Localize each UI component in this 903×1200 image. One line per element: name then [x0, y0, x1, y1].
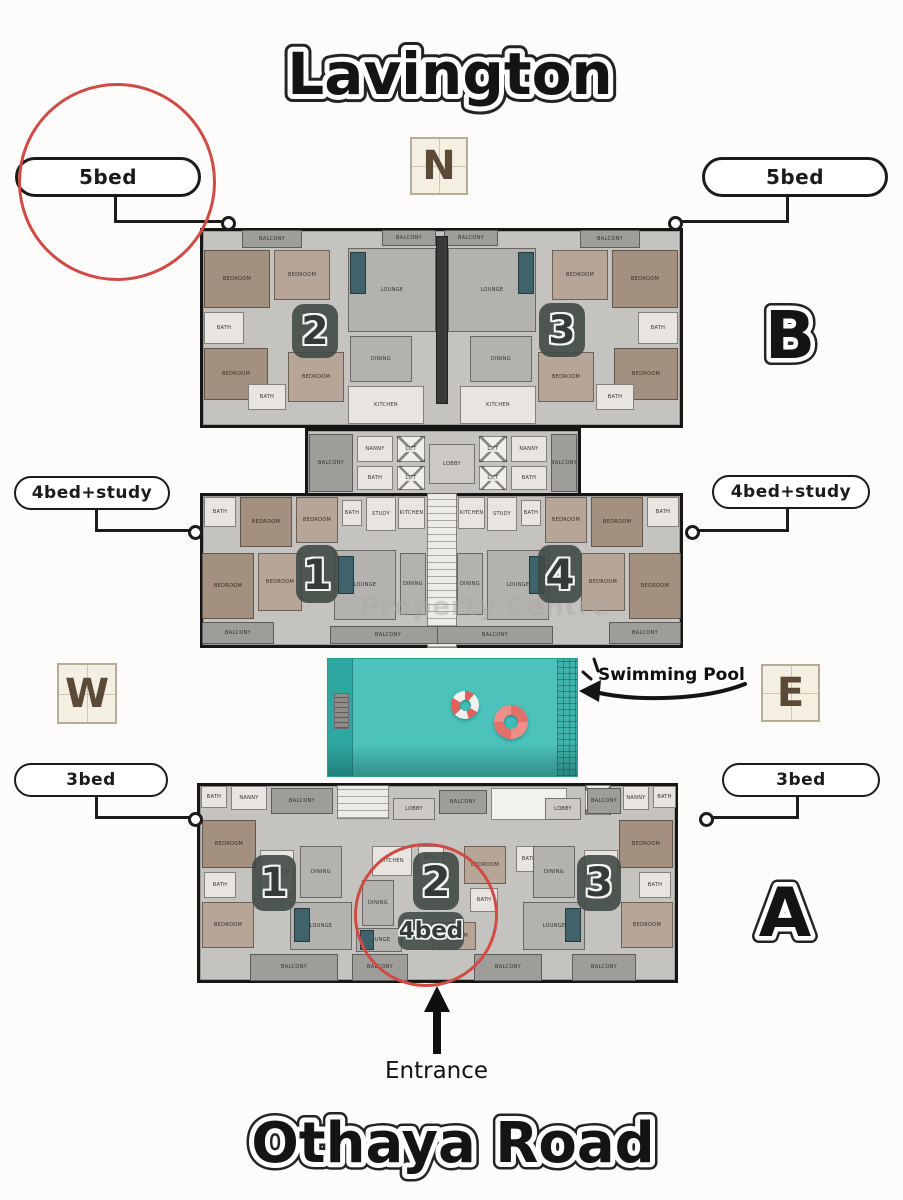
- room-label: BEDROOM: [631, 277, 659, 282]
- tag-4bed-study-right: 4bed+study: [712, 475, 870, 509]
- room-label: BEDROOM: [214, 923, 242, 928]
- room-balcony: BALCONY: [271, 788, 333, 814]
- room-balcony: BALCONY: [439, 790, 487, 814]
- room-area: [337, 785, 389, 819]
- tag-3bed-right: 3bed: [722, 763, 880, 797]
- room-label: BEDROOM: [266, 580, 294, 585]
- room-label: KITCHEN: [374, 403, 398, 408]
- room-label: BEDROOM: [252, 520, 280, 525]
- room-balcony: BALCONY: [330, 626, 446, 644]
- room-label: BATH: [657, 795, 671, 800]
- room-bath: BATH: [639, 872, 671, 898]
- room-bedroom: BEDROOM: [538, 352, 594, 402]
- room-label: LIFT: [486, 476, 499, 481]
- tag-4bed-study-left-label: 4bed+study: [32, 483, 153, 503]
- room-label: BEDROOM: [589, 580, 617, 585]
- room-balcony: BALCONY: [382, 230, 436, 246]
- room-nanny: NANNY: [623, 786, 649, 810]
- connector-line: [704, 816, 799, 819]
- room-area: [350, 252, 366, 294]
- room-balcony: BALCONY: [609, 622, 681, 644]
- room-label: DINING: [491, 357, 511, 362]
- tag-3bed-left: 3bed: [14, 763, 168, 797]
- room-bedroom: BEDROOM: [619, 820, 673, 868]
- room-label: BATH: [524, 511, 538, 516]
- room-area: [436, 236, 448, 404]
- room-label: BALCONY: [458, 236, 484, 241]
- room-label: LOUNGE: [543, 924, 566, 929]
- room-label: BALCONY: [225, 631, 251, 636]
- room-dining: DINING: [300, 846, 342, 898]
- highlight-circle-5bed: [18, 83, 216, 281]
- room-label: DINING: [311, 870, 331, 875]
- room-balcony: BALCONY: [587, 788, 621, 814]
- room-label: BALCONY: [591, 965, 617, 970]
- room-label: DINING: [403, 582, 423, 587]
- room-label: DINING: [371, 357, 391, 362]
- room-balcony: BALCONY: [572, 954, 636, 981]
- connector-endpoint: [668, 216, 683, 231]
- room-label: BALCONY: [396, 236, 422, 241]
- pool-float-hole: [504, 715, 518, 729]
- pool-label-text: Swimming Pool: [598, 665, 745, 685]
- room-lobby: LOBBY: [393, 798, 435, 820]
- room-kitchen: KITCHEN: [348, 386, 424, 424]
- room-lift: LIFT: [479, 466, 507, 490]
- room-study: STUDY: [487, 497, 517, 531]
- pool-shadow: [328, 744, 577, 776]
- room-label: BEDROOM: [303, 518, 331, 523]
- room-area: [518, 252, 534, 294]
- room-label: LOUNGE: [354, 583, 377, 588]
- block-a-letter: A A A: [728, 858, 843, 958]
- room-balcony: BALCONY: [551, 434, 577, 492]
- room-kitchen: KITCHEN: [458, 497, 485, 529]
- connector-endpoint: [188, 525, 203, 540]
- connector-endpoint: [221, 216, 236, 231]
- room-lift: LIFT: [479, 436, 507, 462]
- connector-endpoint: [188, 812, 203, 827]
- tag-5bed-right-label: 5bed: [766, 165, 824, 189]
- site-plan-page: Lavington Lavington Lavington N W E 5bed…: [0, 0, 903, 1200]
- room-balcony: BALCONY: [580, 230, 640, 248]
- room-label: BEDROOM: [214, 584, 242, 589]
- room-bath: BATH: [204, 872, 236, 898]
- room-label: BATH: [522, 476, 536, 481]
- room-bath: BATH: [511, 466, 547, 490]
- room-label: BATH: [217, 326, 231, 331]
- room-label: LOBBY: [443, 462, 461, 467]
- room-label: BATH: [656, 510, 670, 515]
- room-label: BALCONY: [318, 461, 344, 466]
- connector-endpoint: [685, 525, 700, 540]
- room-label: LIFT: [404, 447, 417, 452]
- room-label: BEDROOM: [632, 372, 660, 377]
- room-label: BEDROOM: [215, 842, 243, 847]
- room-bedroom: BEDROOM: [612, 250, 678, 308]
- room-label: STUDY: [372, 512, 390, 517]
- entrance-label-text: Entrance: [385, 1058, 488, 1084]
- room-label: LIFT: [404, 476, 417, 481]
- room-label: LIFT: [486, 447, 499, 452]
- room-nanny: NANNY: [231, 786, 267, 810]
- room-dining: DINING: [533, 846, 575, 898]
- unit-badge-2: 2: [292, 304, 338, 358]
- room-label: KITCHEN: [460, 511, 484, 516]
- room-label: NANNY: [239, 796, 258, 801]
- compass-north-letter: N: [422, 143, 455, 189]
- pool-float-striped: [451, 691, 479, 719]
- entrance-label: Entrance: [385, 1058, 488, 1084]
- room-balcony: BALCONY: [242, 230, 302, 248]
- room-label: BEDROOM: [566, 273, 594, 278]
- room-area: [565, 908, 581, 942]
- compass-west: W: [57, 663, 117, 724]
- pool-float-pink: [494, 705, 528, 739]
- room-lobby: LOBBY: [429, 444, 475, 484]
- room-label: BALCONY: [551, 461, 577, 466]
- room-label: LOBBY: [554, 807, 572, 812]
- pool-float-hole: [460, 700, 471, 711]
- room-label: BEDROOM: [641, 584, 669, 589]
- room-label: BATH: [260, 395, 274, 400]
- room-bath: BATH: [357, 466, 393, 490]
- unit-badge-1: 1: [252, 855, 296, 911]
- room-nanny: NANNY: [357, 436, 393, 462]
- room-label: BEDROOM: [223, 277, 251, 282]
- entrance-arrow-head: [424, 986, 450, 1012]
- room-lift: LIFT: [397, 466, 425, 490]
- room-bath: BATH: [638, 312, 678, 344]
- room-label: LOUNGE: [481, 288, 504, 293]
- room-bedroom: BEDROOM: [629, 553, 681, 619]
- compass-east-letter: E: [777, 670, 804, 716]
- room-bedroom: BEDROOM: [204, 250, 270, 308]
- room-label: BATH: [213, 883, 227, 888]
- room-label: BALCONY: [632, 631, 658, 636]
- room-bedroom: BEDROOM: [296, 497, 338, 543]
- room-label: BATH: [207, 795, 221, 800]
- tag-4bed-study-right-label: 4bed+study: [731, 482, 852, 502]
- tag-4bed-study-left: 4bed+study: [14, 476, 170, 510]
- connector-endpoint: [699, 812, 714, 827]
- tag-3bed-left-label: 3bed: [66, 770, 116, 790]
- room-label: BALCONY: [597, 237, 623, 242]
- room-label: BATH: [651, 326, 665, 331]
- room-bedroom: BEDROOM: [288, 352, 344, 402]
- room-bedroom: BEDROOM: [545, 497, 587, 543]
- room-bedroom: BEDROOM: [202, 553, 254, 619]
- room-label: LOBBY: [405, 807, 423, 812]
- room-dining: DINING: [470, 336, 532, 382]
- room-bath: BATH: [521, 500, 541, 526]
- room-label: BATH: [368, 476, 382, 481]
- room-label: LOUNGE: [310, 924, 333, 929]
- svg-text:B: B: [765, 297, 815, 374]
- room-bath: BATH: [204, 497, 236, 527]
- room-balcony: BALCONY: [474, 954, 542, 981]
- room-lift: LIFT: [397, 436, 425, 462]
- room-label: BEDROOM: [222, 372, 250, 377]
- room-bedroom: BEDROOM: [552, 250, 608, 300]
- unit-badge-4: 4: [538, 545, 582, 603]
- block-b-letter: B B B: [735, 282, 845, 382]
- connector-line: [95, 529, 191, 532]
- room-label: DINING: [544, 870, 564, 875]
- compass-west-letter: W: [65, 671, 109, 717]
- room-bedroom: BEDROOM: [240, 497, 292, 547]
- room-study: STUDY: [366, 497, 396, 531]
- room-label: NANNY: [626, 796, 645, 801]
- room-label: BALCONY: [259, 237, 285, 242]
- room-label: BATH: [213, 510, 227, 515]
- unit-badge-3: 3: [539, 303, 585, 357]
- room-bath: BATH: [248, 384, 286, 410]
- room-label: STUDY: [493, 512, 511, 517]
- room-bath: BATH: [647, 497, 679, 527]
- room-balcony: BALCONY: [444, 230, 498, 246]
- room-balcony: BALCONY: [309, 434, 353, 492]
- room-kitchen: KITCHEN: [398, 497, 425, 529]
- room-label: BALCONY: [289, 799, 315, 804]
- room-label: BALCONY: [281, 965, 307, 970]
- room-label: BALCONY: [482, 633, 508, 638]
- unit-badge-1: 1: [296, 545, 338, 603]
- unit-badge-3: 3: [577, 855, 621, 911]
- room-label: BALCONY: [375, 633, 401, 638]
- room-bath: BATH: [653, 786, 676, 808]
- room-label: KITCHEN: [486, 403, 510, 408]
- room-lobby: LOBBY: [545, 798, 581, 820]
- room-area: [338, 556, 354, 594]
- room-balcony: BALCONY: [437, 626, 553, 644]
- room-bedroom: BEDROOM: [274, 250, 330, 300]
- room-bedroom: BEDROOM: [621, 902, 673, 948]
- room-kitchen: KITCHEN: [460, 386, 536, 424]
- room-label: BALCONY: [495, 965, 521, 970]
- tag-5bed-right: 5bed: [702, 157, 888, 197]
- svg-text:Othaya Road: Othaya Road: [251, 1111, 655, 1176]
- room-bath: BATH: [201, 786, 227, 808]
- room-label: BEDROOM: [603, 520, 631, 525]
- room-balcony: BALCONY: [202, 622, 274, 644]
- room-label: BEDROOM: [552, 518, 580, 523]
- room-label: KITCHEN: [400, 511, 424, 516]
- room-balcony: BALCONY: [250, 954, 338, 981]
- room-bedroom: BEDROOM: [202, 902, 254, 948]
- room-label: BATH: [608, 395, 622, 400]
- room-dining: DINING: [350, 336, 412, 382]
- room-label: BALCONY: [591, 799, 617, 804]
- room-label: BEDROOM: [302, 375, 330, 380]
- room-label: BALCONY: [450, 800, 476, 805]
- room-label: BEDROOM: [288, 273, 316, 278]
- room-label: NANNY: [365, 447, 384, 452]
- room-label: LOUNGE: [507, 583, 530, 588]
- room-label: BEDROOM: [552, 375, 580, 380]
- room-label: BATH: [648, 883, 662, 888]
- room-bath: BATH: [204, 312, 244, 344]
- room-label: NANNY: [519, 447, 538, 452]
- connector-line: [786, 196, 789, 222]
- road-title: Othaya Road Othaya Road Othaya Road: [238, 1092, 668, 1192]
- entrance-arrow-shaft: [433, 1010, 441, 1054]
- circled-unit-tag: 4bed: [398, 912, 464, 950]
- connector-line: [95, 816, 191, 819]
- room-bath: BATH: [596, 384, 634, 410]
- swimming-pool: [327, 658, 578, 777]
- room-nanny: NANNY: [511, 436, 547, 462]
- room-bedroom: BEDROOM: [202, 820, 256, 868]
- room-bedroom: BEDROOM: [591, 497, 643, 547]
- pool-steps: [334, 693, 349, 729]
- connector-line: [678, 220, 789, 223]
- room-label: BATH: [345, 511, 359, 516]
- svg-text:A: A: [759, 874, 812, 953]
- tag-3bed-right-label: 3bed: [776, 770, 826, 790]
- circled-unit-tag-label: 4bed: [399, 918, 464, 944]
- room-bath: BATH: [342, 500, 362, 526]
- pool-label: Swimming Pool: [598, 665, 745, 685]
- room-area: [294, 908, 310, 942]
- connector-line: [694, 529, 789, 532]
- room-label: DINING: [460, 582, 480, 587]
- room-label: BEDROOM: [632, 842, 660, 847]
- room-area: [427, 493, 457, 648]
- room-label: LOUNGE: [381, 288, 404, 293]
- room-label: BEDROOM: [633, 923, 661, 928]
